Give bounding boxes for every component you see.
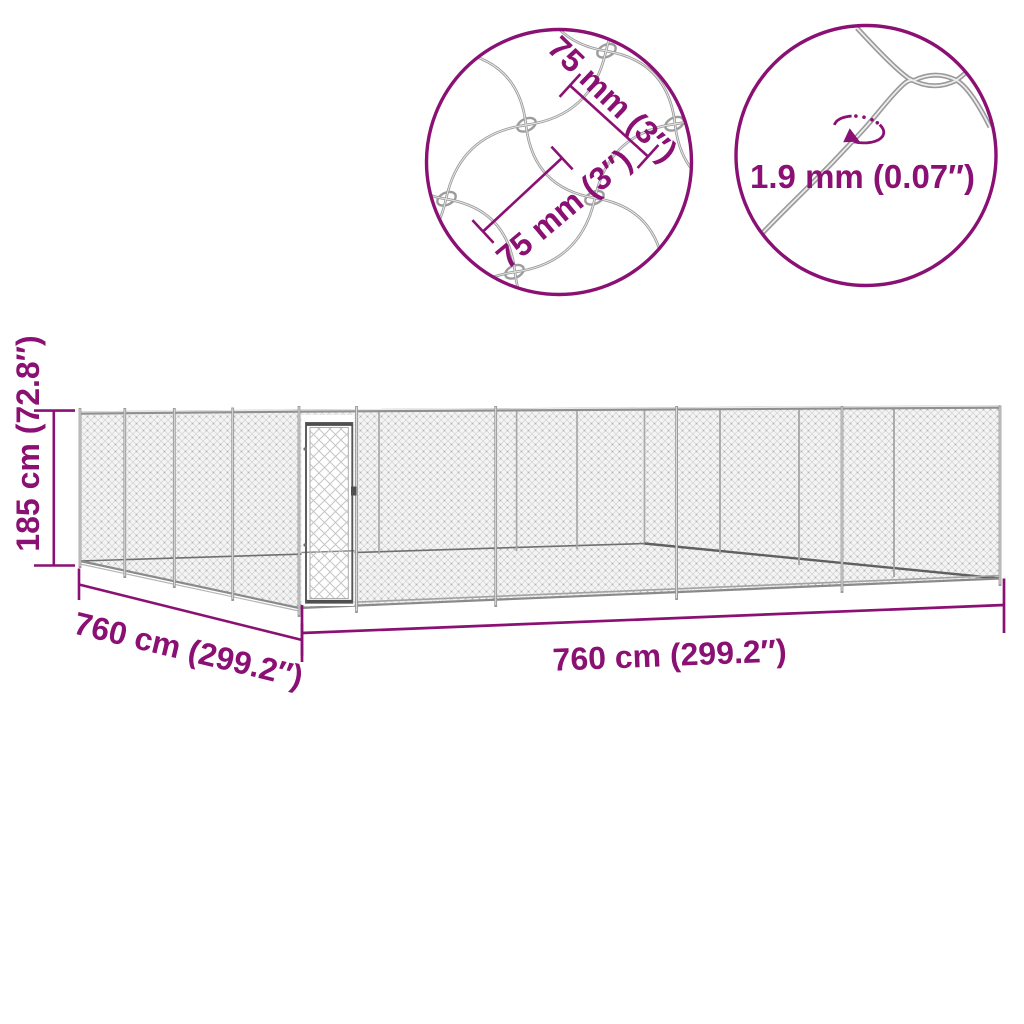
svg-text:1.9 mm (0.07″): 1.9 mm (0.07″): [750, 158, 975, 195]
svg-text:760 cm (299.2″): 760 cm (299.2″): [71, 605, 307, 695]
svg-text:185 cm (72.8″): 185 cm (72.8″): [10, 335, 46, 551]
svg-text:760 cm (299.2″): 760 cm (299.2″): [552, 632, 787, 677]
